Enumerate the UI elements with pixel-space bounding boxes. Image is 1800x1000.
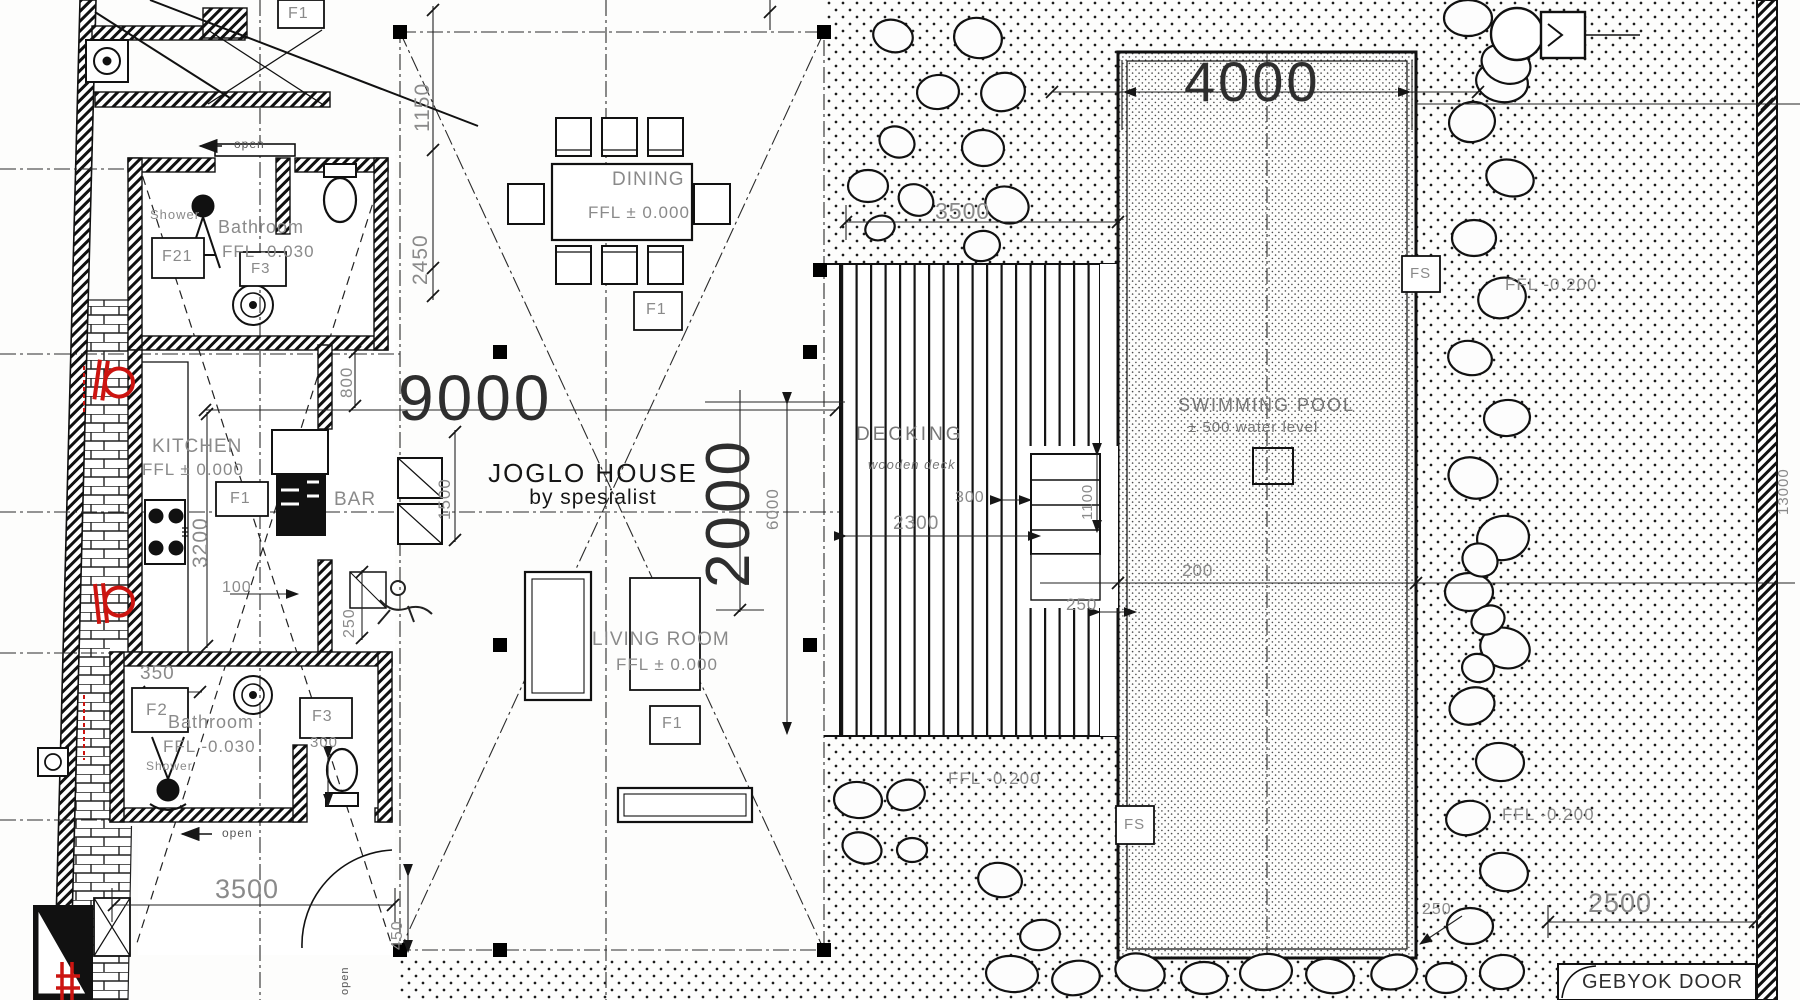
dim-250-corner: 250 (1422, 902, 1452, 918)
dim-1100: 1100 (1080, 484, 1095, 520)
tag-f1-kitchen: F1 (230, 491, 251, 507)
dim-1150: 1150 (412, 83, 433, 132)
plan-title: JOGLO HOUSE (488, 460, 698, 486)
room-dining-ffl: FFL ± 0.000 (588, 204, 690, 221)
dim-2500: 2500 (1588, 890, 1652, 917)
room-pool-sub: ± 500 water level (1188, 420, 1318, 435)
room-kitchen-ffl: FFL ± 0.000 (142, 461, 244, 478)
ffl-outdoor-left: FFL -0.200 (948, 770, 1041, 787)
tag-f1-living: F1 (662, 716, 683, 732)
plan-subtitle: by spesialist (488, 487, 698, 508)
room-bath-bottom: Bathroom (168, 713, 254, 731)
dim-6000: 6000 (764, 488, 781, 530)
tag-f2: F2 (146, 701, 168, 718)
gebyok-door-label: GEBYOK DOOR (1582, 972, 1743, 992)
tag-f3-top: F3 (251, 261, 271, 276)
dim-100: 100 (222, 580, 252, 596)
dim-300-bath: 300 (310, 735, 338, 750)
ffl-outdoor-right-top: FFL -0.200 (1505, 276, 1598, 293)
dim-9000: 9000 (398, 366, 552, 430)
dim-2000: 2000 (698, 438, 760, 588)
toilet-tank (324, 164, 356, 177)
bench (618, 788, 752, 822)
floor-plan-drawing (0, 0, 1800, 1000)
dim-2450: 2450 (410, 234, 431, 285)
shower-label-bottom: Shower (146, 760, 193, 772)
dim-2300: 2300 (893, 514, 939, 533)
room-living-ffl: FFL ± 0.000 (616, 656, 718, 673)
open-label-side: open (340, 967, 351, 995)
toilet-tank (326, 793, 358, 806)
dim-3500-top: 3500 (935, 200, 990, 223)
open-label-bottom: open (222, 827, 253, 839)
dim-3200: 3200 (190, 517, 211, 568)
room-bath-bottom-ffl: FFL -0.030 (163, 738, 256, 755)
dim-3500-bottom: 3500 (215, 876, 279, 903)
room-living: LIVING ROOM (592, 630, 730, 649)
tag-f1-dining: F1 (646, 302, 667, 318)
open-label-top: open (234, 138, 265, 150)
dim-4000: 4000 (1184, 54, 1321, 110)
dim-300-deck: 300 (955, 490, 985, 506)
dim-350: 350 (140, 664, 175, 683)
room-decking-sub: wooden deck (868, 458, 956, 471)
room-dining: DINING (612, 170, 685, 189)
tag-f1-topleft: F1 (288, 6, 309, 22)
room-kitchen: KITCHEN (152, 437, 242, 456)
dim-13000: 13000 (1776, 468, 1791, 515)
room-pool: SWIMMING POOL (1178, 396, 1355, 414)
shower-head (157, 779, 179, 801)
dim-200: 200 (1182, 562, 1213, 579)
room-bar: BAR (334, 490, 376, 509)
tag-fs-top: FS (1410, 266, 1431, 281)
dim-250-pool: 250 (1066, 596, 1097, 613)
dim-250-bar: 250 (342, 608, 358, 638)
pool-steps (1022, 446, 1118, 608)
floor-plan: JOGLO HOUSE by spesialist DINING FFL ± 0… (0, 0, 1800, 1000)
dim-800: 800 (338, 367, 355, 398)
room-bath-top: Bathroom (218, 218, 304, 236)
swimming-pool (1118, 52, 1416, 958)
room-bath-top-ffl: FFL -0.030 (222, 243, 315, 260)
tag-f3-bottom: F3 (312, 709, 333, 725)
tag-fs-bottom: FS (1124, 817, 1145, 832)
ffl-outdoor-right-bottom: FFL -0.200 (1502, 806, 1595, 823)
dim-1500: 1500 (436, 478, 453, 520)
shower-label-top: Shower (150, 208, 200, 221)
tag-f21: F21 (162, 249, 193, 265)
dim-450: 450 (390, 920, 406, 950)
dining-table (508, 118, 730, 284)
room-decking: DECKING (856, 425, 964, 444)
